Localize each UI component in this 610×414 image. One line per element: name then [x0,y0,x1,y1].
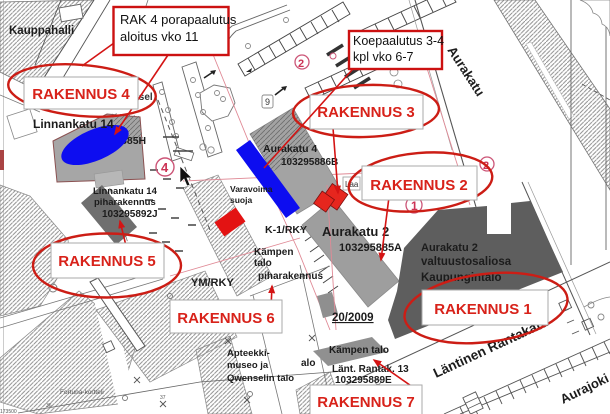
svg-text:kpl vko 6-7: kpl vko 6-7 [353,50,413,64]
svg-text:RAK 4 porapaalutus: RAK 4 porapaalutus [120,12,237,27]
svg-text:Fortuna-kortteli: Fortuna-kortteli [60,389,104,396]
svg-text:suoja: suoja [230,195,252,205]
svg-text:RAKENNUS 1: RAKENNUS 1 [434,301,532,318]
svg-text:4: 4 [161,160,169,175]
svg-text:K-1/RKY: K-1/RKY [265,224,307,236]
svg-text:Aurakatu 2: Aurakatu 2 [322,224,389,239]
svg-text:20/2009: 20/2009 [332,312,374,324]
svg-text:Kämpen: Kämpen [254,247,293,258]
svg-text:RAKENNUS 7: RAKENNUS 7 [317,394,415,411]
svg-text:RAKENNUS 6: RAKENNUS 6 [177,310,275,327]
svg-text:talo: talo [254,258,272,269]
svg-text:museo ja: museo ja [227,360,269,371]
svg-text:Länt. Rantak. 13: Länt. Rantak. 13 [332,364,409,375]
svg-text:Qwenselin talo: Qwenselin talo [227,373,294,384]
svg-text:Aurakatu 4: Aurakatu 4 [263,143,317,155]
svg-text:YM/RKY: YM/RKY [191,277,234,289]
svg-text:aloitus vko 11: aloitus vko 11 [120,29,199,44]
svg-text:Varavoima: Varavoima [230,184,273,194]
svg-text:Linnankatu 14: Linnankatu 14 [93,186,158,197]
svg-text:Kauppahalli: Kauppahalli [9,25,74,37]
svg-text:Koepaalutus 3-4: Koepaalutus 3-4 [353,34,444,48]
svg-text:103295892J: 103295892J [102,209,158,220]
svg-text:Linnankatu 14: Linnankatu 14 [33,117,114,131]
svg-text:valtuustosaliosa: valtuustosaliosa [421,256,512,268]
svg-text:103295889E: 103295889E [335,375,392,386]
svg-text:RAKENNUS 2: RAKENNUS 2 [370,177,468,194]
svg-text:RAKENNUS 3: RAKENNUS 3 [317,104,415,121]
svg-text:piharakennus: piharakennus [258,271,323,282]
svg-text:piharakennus: piharakennus [94,197,156,208]
svg-text:2: 2 [298,58,304,70]
svg-text:RAKENNUS 5: RAKENNUS 5 [58,253,156,270]
svg-text:103295885A: 103295885A [339,242,402,254]
svg-text:9: 9 [265,97,270,107]
svg-text:Aurakatu 2: Aurakatu 2 [421,242,478,254]
svg-text:Laa: Laa [345,180,359,189]
svg-text:Kämpen talo: Kämpen talo [329,345,389,356]
svg-text:RAKENNUS 4: RAKENNUS 4 [32,86,130,103]
svg-text:36: 36 [46,403,52,409]
svg-text:103295886B: 103295886B [281,157,338,168]
svg-text:173500: 173500 [0,409,17,414]
svg-text:37: 37 [160,395,166,401]
svg-text:Apteekki-: Apteekki- [227,348,270,359]
svg-text:alo: alo [301,358,315,369]
